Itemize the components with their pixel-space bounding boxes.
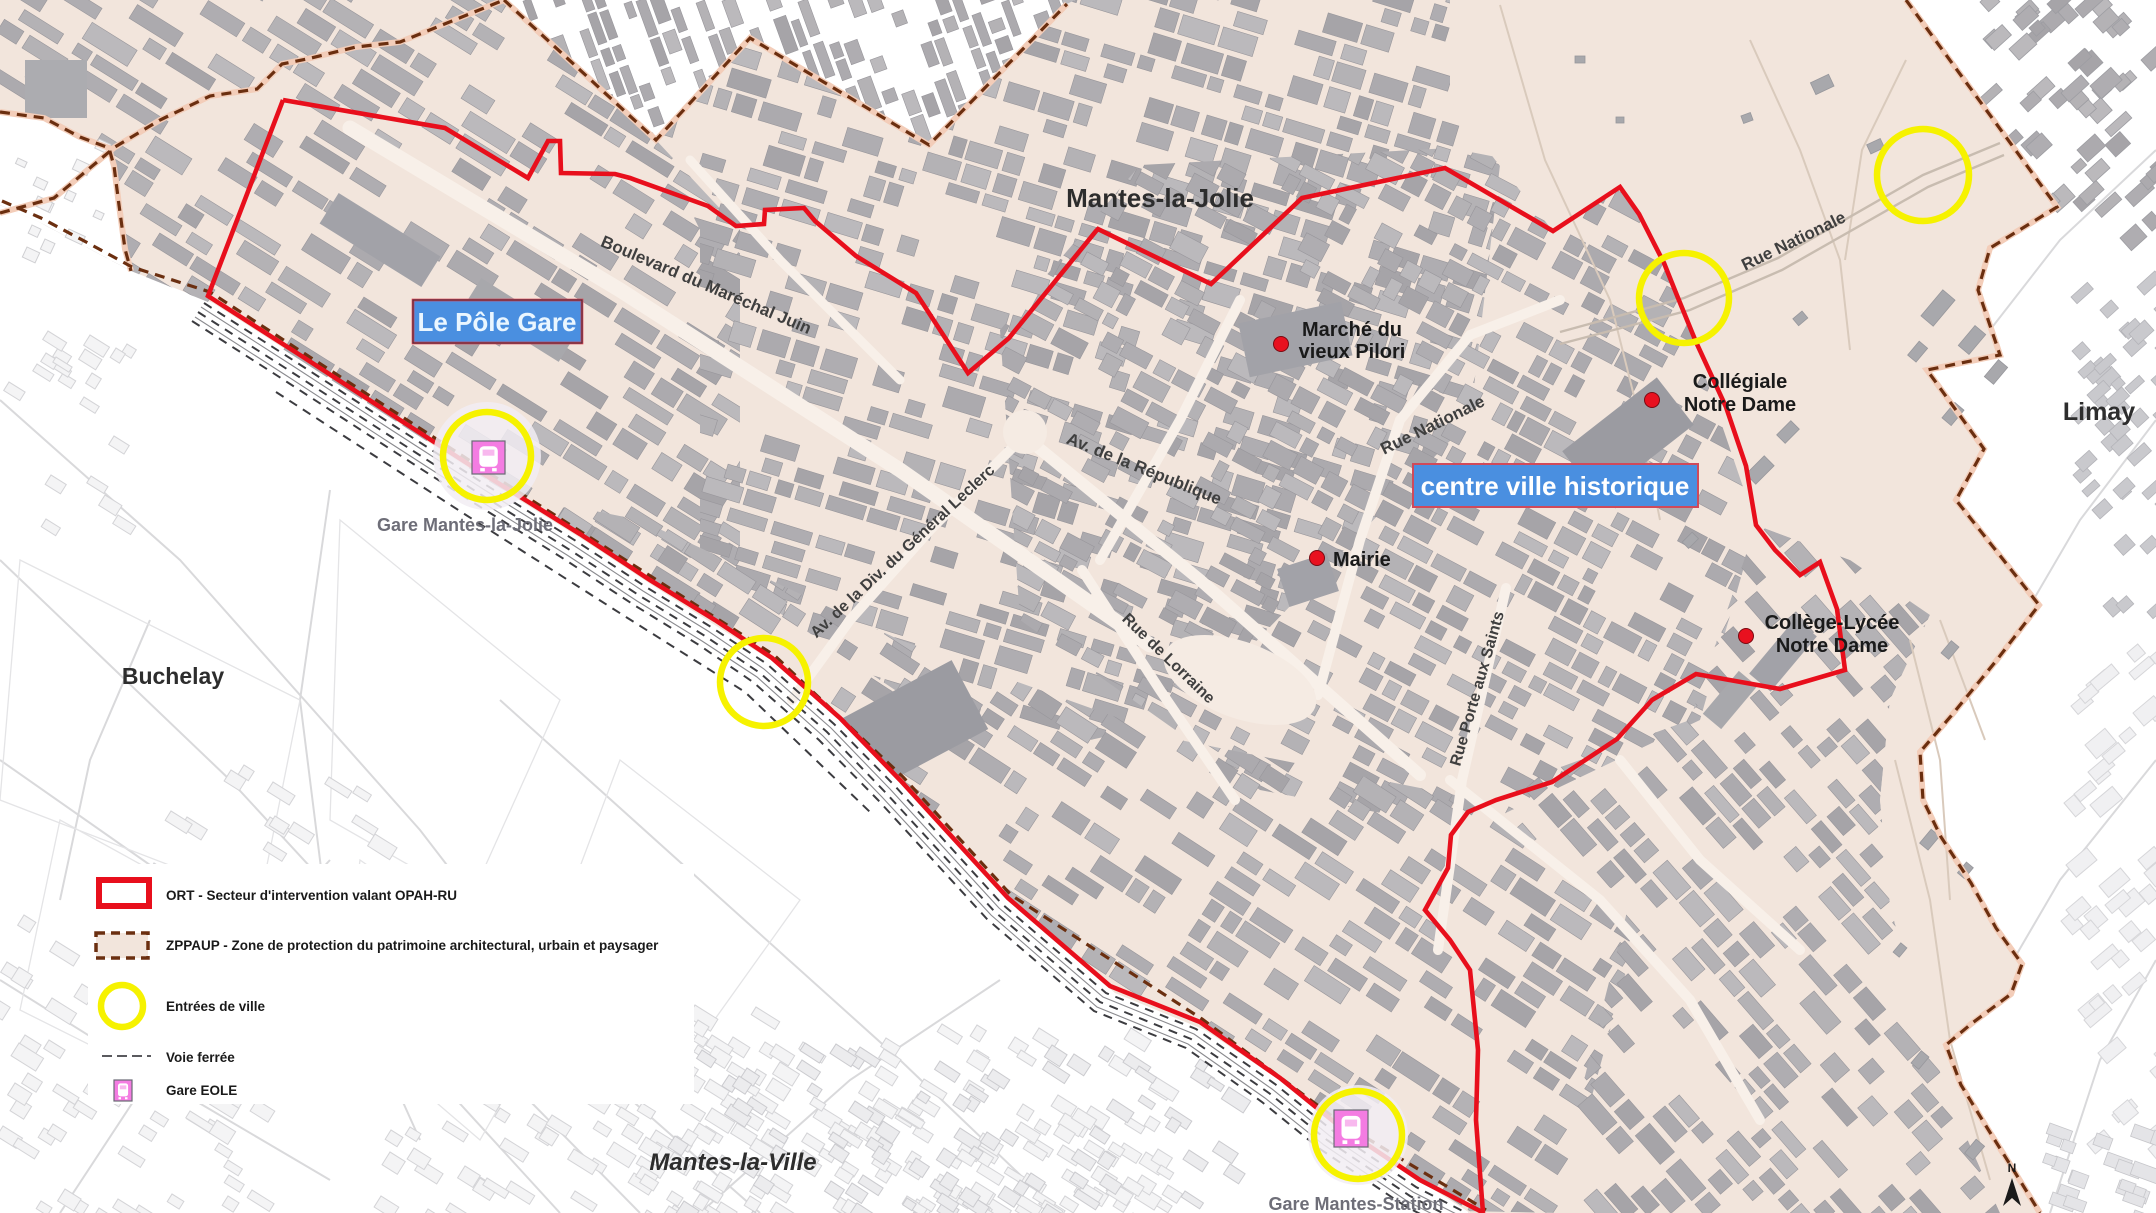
svg-text:Mairie: Mairie [1333, 549, 1391, 571]
svg-text:Mantes-la-Jolie: Mantes-la-Jolie [1066, 183, 1254, 213]
svg-text:Buchelay: Buchelay [122, 663, 224, 689]
svg-text:centre ville historique: centre ville historique [1421, 471, 1690, 501]
svg-text:Notre Dame: Notre Dame [1684, 394, 1796, 416]
svg-text:Voie ferrée: Voie ferrée [166, 1050, 235, 1065]
svg-text:Collège-Lycée: Collège-Lycée [1765, 612, 1900, 634]
svg-text:ORT - Secteur d'intervention v: ORT - Secteur d'intervention valant OPAH… [166, 888, 457, 903]
svg-text:Marché du: Marché du [1302, 319, 1402, 341]
svg-text:Notre Dame: Notre Dame [1776, 635, 1888, 657]
svg-text:N: N [2008, 1161, 2017, 1175]
svg-text:vieux Pilori: vieux Pilori [1299, 341, 1406, 363]
svg-text:Entrées de ville: Entrées de ville [166, 999, 266, 1014]
svg-text:Gare EOLE: Gare EOLE [166, 1083, 237, 1098]
svg-text:ZPPAUP - Zone de protection du: ZPPAUP - Zone de protection du patrimoin… [166, 938, 659, 953]
svg-text:Gare Mantes-la-Jolie: Gare Mantes-la-Jolie [377, 515, 553, 535]
svg-text:Limay: Limay [2063, 398, 2135, 426]
svg-text:Gare Mantes-Station: Gare Mantes-Station [1268, 1194, 1443, 1213]
svg-text:Le Pôle Gare: Le Pôle Gare [418, 307, 577, 337]
svg-text:Collégiale: Collégiale [1693, 371, 1787, 393]
svg-text:Mantes-la-Ville: Mantes-la-Ville [649, 1149, 816, 1176]
